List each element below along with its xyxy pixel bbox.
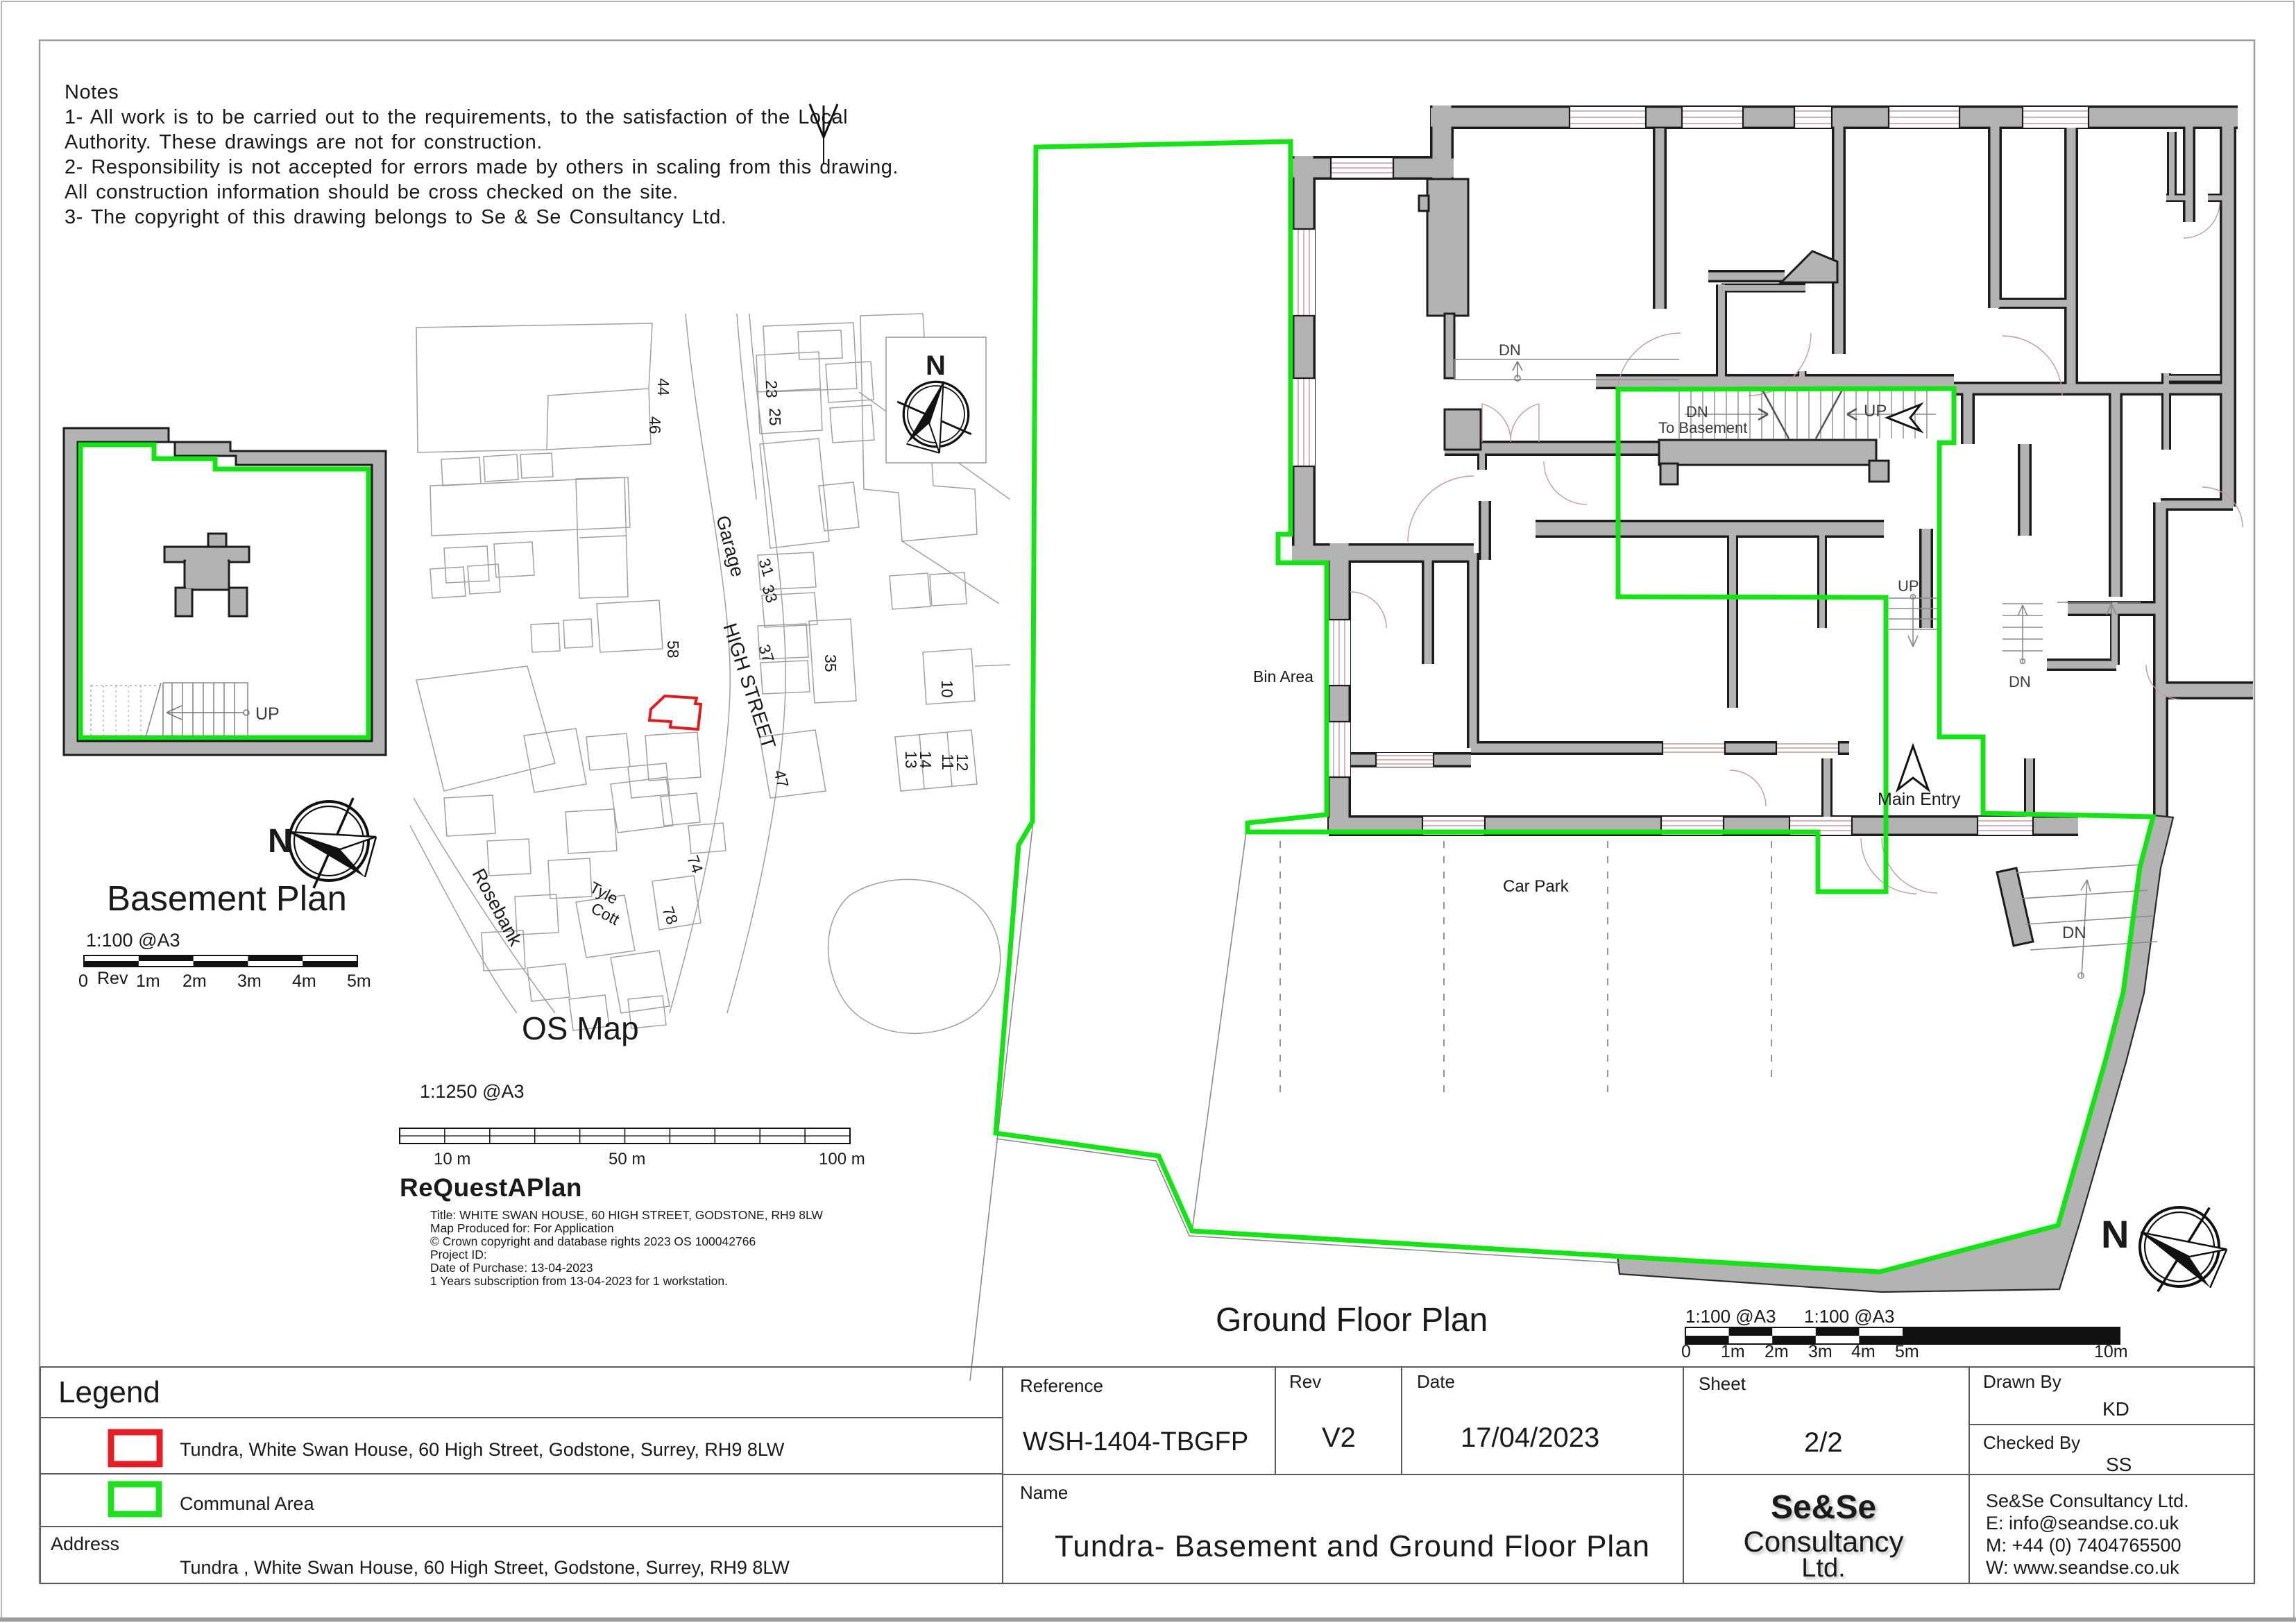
svg-text:All construction information s: All construction information should be c…	[65, 181, 679, 203]
svg-text:2m: 2m	[182, 971, 207, 991]
svg-text:46: 46	[646, 416, 664, 434]
svg-text:10m: 10m	[2094, 1342, 2128, 1361]
svg-text:Rev: Rev	[97, 969, 128, 988]
svg-text:100 m: 100 m	[819, 1150, 865, 1169]
svg-text:Date: Date	[1417, 1371, 1455, 1392]
svg-text:DN: DN	[1686, 403, 1708, 420]
svg-text:17/04/2023: 17/04/2023	[1461, 1422, 1599, 1453]
svg-text:25: 25	[766, 408, 784, 426]
svg-text:1 Years subscription from 13-0: 1 Years subscription from 13-04-2023 for…	[430, 1274, 728, 1288]
svg-text:23: 23	[763, 380, 781, 398]
svg-text:1- All work is to be carried o: 1- All work is to be carried out to the …	[65, 106, 848, 128]
svg-text:Cott: Cott	[588, 899, 623, 928]
svg-text:Project ID:: Project ID:	[430, 1248, 487, 1261]
svg-text:1:100 @A3: 1:100 @A3	[86, 930, 180, 951]
svg-text:DN: DN	[2062, 924, 2086, 942]
svg-text:3m: 3m	[1808, 1342, 1832, 1361]
svg-text:10: 10	[938, 680, 956, 698]
svg-text:Date of Purchase: 13-04-2023: Date of Purchase: 13-04-2023	[430, 1261, 593, 1275]
svg-text:58: 58	[664, 640, 682, 658]
svg-text:N: N	[268, 823, 292, 860]
svg-text:OS Map: OS Map	[522, 1010, 639, 1046]
svg-text:Consultancy: Consultancy	[1743, 1525, 1903, 1558]
svg-text:Title: WHITE SWAN HOUSE, 60 HI: Title: WHITE SWAN HOUSE, 60 HIGH STREET,…	[430, 1208, 823, 1222]
svg-text:Tundra- Basement and Ground Fl: Tundra- Basement and Ground Floor Plan	[1055, 1529, 1650, 1563]
svg-text:Se&Se: Se&Se	[1771, 1489, 1876, 1526]
svg-text:Tundra , White Swan House, 60: Tundra , White Swan House, 60 High Stree…	[180, 1557, 790, 1578]
svg-text:W: www.seandse.co.uk: W: www.seandse.co.uk	[1986, 1557, 2179, 1578]
svg-text:Map Produced for: For Applicat: Map Produced for: For Application	[430, 1221, 614, 1235]
svg-text:74: 74	[683, 853, 706, 876]
svg-text:1:100 @A3: 1:100 @A3	[1685, 1306, 1776, 1327]
svg-text:78: 78	[658, 904, 681, 927]
svg-text:35: 35	[822, 654, 840, 672]
svg-text:© Crown copyright and database: © Crown copyright and database rights 20…	[430, 1234, 756, 1248]
svg-text:5m: 5m	[347, 971, 371, 991]
svg-text:UP: UP	[255, 704, 280, 724]
svg-text:2/2: 2/2	[1804, 1427, 1843, 1458]
svg-text:3- The copyright of this drawi: 3- The copyright of this drawing belongs…	[65, 206, 726, 228]
svg-text:2m: 2m	[1764, 1342, 1789, 1361]
svg-text:47: 47	[770, 768, 792, 790]
svg-text:2- Responsibility is not accep: 2- Responsibility is not accepted for er…	[65, 156, 899, 178]
svg-text:DN: DN	[2009, 673, 2031, 690]
svg-text:HIGH STREET: HIGH STREET	[719, 620, 780, 751]
svg-text:44: 44	[654, 378, 672, 396]
svg-text:UP: UP	[1898, 577, 1919, 595]
svg-text:ReQuestAPlan: ReQuestAPlan	[400, 1173, 582, 1202]
svg-text:1:1250 @A3: 1:1250 @A3	[420, 1081, 525, 1102]
svg-text:Tundra, White Swan House, 60 H: Tundra, White Swan House, 60 High Street…	[180, 1439, 785, 1460]
svg-text:Reference: Reference	[1020, 1375, 1103, 1396]
svg-text:Checked By: Checked By	[1983, 1432, 2080, 1453]
svg-text:To Basement: To Basement	[1658, 419, 1747, 436]
svg-text:KD: KD	[2102, 1398, 2129, 1420]
svg-text:4m: 4m	[292, 971, 316, 991]
svg-text:E: info@seandse.co.uk: E: info@seandse.co.uk	[1986, 1513, 2179, 1533]
svg-text:1m: 1m	[136, 971, 160, 991]
svg-text:UP: UP	[1864, 402, 1887, 420]
svg-text:Legend: Legend	[58, 1375, 160, 1409]
svg-text:1:100 @A3: 1:100 @A3	[1804, 1306, 1894, 1327]
svg-text:N: N	[2101, 1212, 2129, 1256]
svg-text:14: 14	[917, 751, 935, 769]
svg-text:Car Park: Car Park	[1503, 877, 1570, 896]
svg-text:DN: DN	[1499, 341, 1521, 359]
svg-text:50 m: 50 m	[609, 1150, 645, 1169]
svg-text:Rev: Rev	[1289, 1371, 1321, 1392]
svg-text:10 m: 10 m	[434, 1150, 470, 1169]
svg-text:Main Entry: Main Entry	[1878, 790, 1961, 809]
svg-text:4m: 4m	[1851, 1342, 1876, 1361]
svg-text:3m: 3m	[237, 971, 262, 991]
svg-text:N: N	[926, 350, 946, 381]
svg-text:Basement Plan: Basement Plan	[107, 878, 347, 918]
svg-text:SS: SS	[2106, 1454, 2132, 1475]
svg-text:1m: 1m	[1721, 1342, 1745, 1361]
svg-text:0: 0	[78, 971, 88, 991]
svg-text:Se&Se Consultancy Ltd.: Se&Se Consultancy Ltd.	[1986, 1490, 2189, 1511]
svg-text:Ground Floor Plan: Ground Floor Plan	[1216, 1302, 1488, 1339]
svg-text:Authority. These drawings are: Authority. These drawings are not for co…	[65, 131, 543, 153]
svg-text:Name: Name	[1020, 1482, 1068, 1503]
svg-text:Communal Area: Communal Area	[180, 1493, 315, 1514]
svg-text:0: 0	[1681, 1342, 1691, 1361]
svg-text:Bin Area: Bin Area	[1253, 668, 1313, 686]
svg-text:5m: 5m	[1895, 1342, 1919, 1361]
svg-text:Rosebank: Rosebank	[468, 865, 527, 950]
svg-text:Sheet: Sheet	[1699, 1373, 1746, 1394]
svg-text:Address: Address	[51, 1533, 119, 1554]
svg-text:Drawn By: Drawn By	[1983, 1371, 2061, 1392]
svg-text:Notes: Notes	[65, 81, 119, 103]
svg-text:V2: V2	[1322, 1422, 1356, 1453]
svg-text:Ltd.: Ltd.	[1801, 1554, 1845, 1583]
svg-text:12: 12	[953, 754, 971, 772]
svg-text:WSH-1404-TBGFP: WSH-1404-TBGFP	[1023, 1427, 1248, 1456]
svg-text:M: +44 (0) 7404765500: M: +44 (0) 7404765500	[1986, 1535, 2181, 1556]
